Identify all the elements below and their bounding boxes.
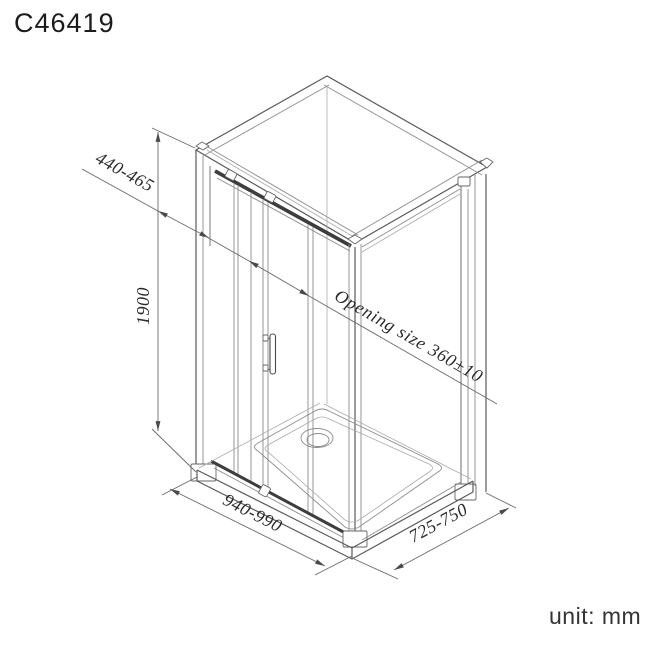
- roller-right: [264, 191, 277, 203]
- dim-panel-width-label: 440-465: [92, 148, 157, 196]
- technical-drawing-page: C46419: [0, 0, 650, 650]
- door-handle: [263, 334, 276, 374]
- dim-side-depth: 725-750: [352, 493, 516, 579]
- drain: [301, 429, 333, 448]
- dim-panel-width: 440-465: [82, 148, 210, 246]
- top-sliding-rail: [215, 169, 351, 251]
- dim-opening-size: Opening size 360±10: [205, 236, 497, 404]
- corner-cap-front: [348, 235, 362, 244]
- corner-cap-right: [480, 158, 493, 168]
- unit-label: unit: mm: [549, 603, 641, 630]
- dim-front-width: 940-990: [162, 477, 352, 575]
- side-post-cap: [458, 177, 470, 186]
- left-wall-profile: [191, 150, 216, 481]
- dim-height-label: 1900: [133, 287, 153, 325]
- enclosure-isometric-drawing: 1900 440-465 Opening size 360±10 940-990: [0, 0, 650, 650]
- sliding-door-panels: [211, 183, 349, 540]
- dim-side-depth-label: 725-750: [405, 499, 470, 546]
